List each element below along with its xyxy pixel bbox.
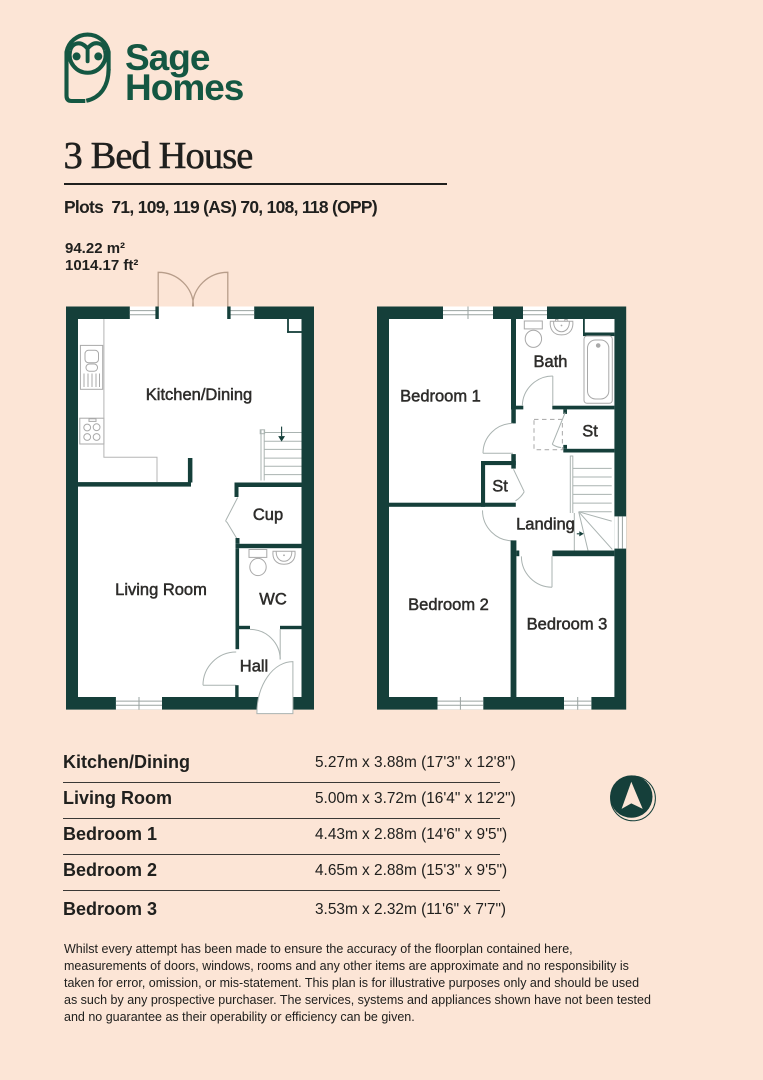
svg-text:Bedroom 3: Bedroom 3: [527, 616, 608, 634]
svg-text:Bedroom 1: Bedroom 1: [400, 388, 481, 406]
svg-text:Bedroom 2: Bedroom 2: [408, 596, 489, 614]
svg-text:Living Room: Living Room: [115, 581, 207, 599]
svg-text:Kitchen/Dining: Kitchen/Dining: [146, 386, 252, 404]
svg-text:Landing: Landing: [516, 516, 575, 534]
svg-text:Bath: Bath: [534, 353, 568, 371]
svg-text:WC: WC: [259, 591, 287, 609]
svg-text:St: St: [582, 423, 598, 441]
svg-text:St: St: [492, 478, 508, 496]
svg-text:Hall: Hall: [240, 658, 268, 676]
svg-text:Cup: Cup: [253, 506, 283, 524]
